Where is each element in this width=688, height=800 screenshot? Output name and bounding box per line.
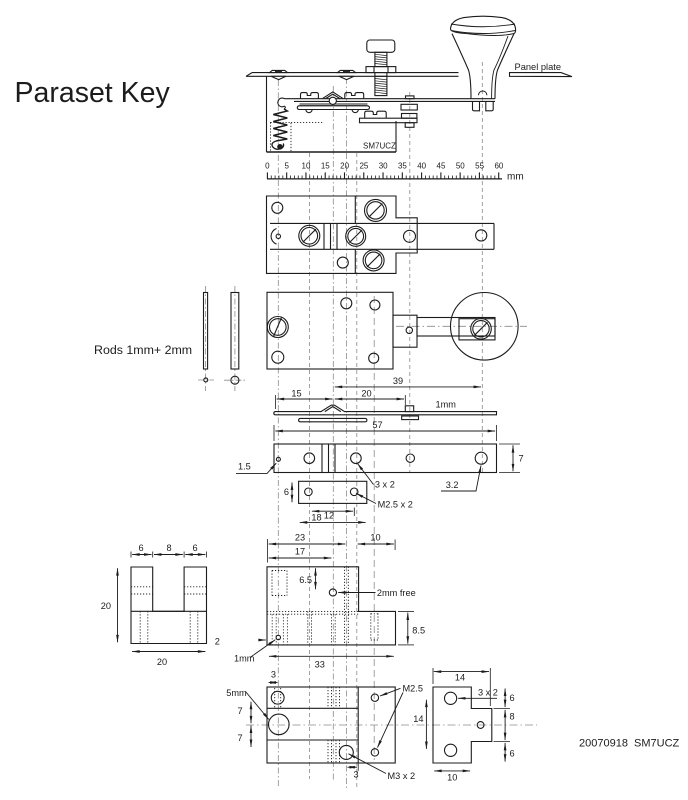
svg-text:20070918 SM7UCZ: 20070918 SM7UCZ: [579, 738, 680, 750]
svg-text:14: 14: [413, 714, 423, 724]
svg-text:1.5: 1.5: [238, 462, 251, 472]
svg-text:30: 30: [379, 162, 388, 171]
svg-text:Rods 1mm+ 2mm: Rods 1mm+ 2mm: [94, 343, 192, 357]
svg-text:20: 20: [157, 657, 167, 667]
svg-text:7: 7: [237, 706, 242, 716]
svg-text:M3 x 2: M3 x 2: [388, 771, 416, 781]
svg-text:6.5: 6.5: [299, 575, 312, 585]
svg-text:1mm: 1mm: [436, 400, 457, 410]
svg-text:1mm: 1mm: [234, 654, 255, 664]
svg-text:60: 60: [494, 162, 503, 171]
svg-text:3: 3: [353, 770, 358, 780]
svg-text:20: 20: [361, 389, 371, 399]
svg-text:8: 8: [166, 543, 171, 553]
svg-text:5: 5: [284, 162, 289, 171]
svg-text:6: 6: [138, 543, 143, 553]
svg-text:50: 50: [456, 162, 465, 171]
svg-text:18: 18: [311, 513, 321, 523]
svg-text:M2.5: M2.5: [403, 684, 423, 694]
svg-text:3 x 2: 3 x 2: [375, 480, 395, 490]
svg-text:15: 15: [291, 389, 301, 399]
svg-text:40: 40: [417, 162, 426, 171]
svg-text:17: 17: [295, 547, 305, 557]
svg-text:5mm: 5mm: [226, 688, 247, 698]
svg-text:Paraset Key: Paraset Key: [15, 77, 171, 109]
svg-text:10: 10: [302, 162, 311, 171]
svg-text:7: 7: [519, 454, 524, 464]
svg-text:0: 0: [265, 162, 270, 171]
svg-text:35: 35: [398, 162, 407, 171]
svg-text:8.5: 8.5: [412, 626, 425, 636]
svg-text:3.2: 3.2: [446, 480, 459, 490]
svg-text:23: 23: [295, 533, 305, 543]
svg-text:10: 10: [370, 533, 380, 543]
svg-text:20: 20: [101, 601, 111, 611]
svg-text:6: 6: [192, 543, 197, 553]
svg-text:57: 57: [372, 420, 382, 430]
svg-text:8: 8: [510, 712, 515, 722]
svg-text:Panel plate: Panel plate: [515, 62, 562, 72]
svg-text:3: 3: [271, 670, 276, 680]
svg-text:39: 39: [393, 376, 403, 386]
svg-text:12: 12: [324, 511, 334, 521]
svg-text:2mm free: 2mm free: [377, 588, 416, 598]
svg-text:2: 2: [215, 637, 220, 647]
svg-text:M2.5 x 2: M2.5 x 2: [378, 500, 413, 510]
svg-text:3 x 2: 3 x 2: [478, 688, 498, 698]
svg-text:7: 7: [237, 733, 242, 743]
svg-text:33: 33: [315, 660, 325, 670]
svg-text:10: 10: [447, 773, 457, 783]
svg-text:20: 20: [340, 162, 349, 171]
svg-text:25: 25: [359, 162, 368, 171]
svg-text:55: 55: [475, 162, 484, 171]
svg-text:6: 6: [510, 693, 515, 703]
svg-text:15: 15: [321, 162, 330, 171]
svg-text:6: 6: [284, 487, 289, 497]
svg-text:6: 6: [510, 749, 515, 759]
svg-text:45: 45: [437, 162, 446, 171]
svg-text:SM7UCZ: SM7UCZ: [363, 142, 396, 151]
svg-text:mm: mm: [507, 172, 524, 183]
svg-text:14: 14: [455, 673, 465, 683]
